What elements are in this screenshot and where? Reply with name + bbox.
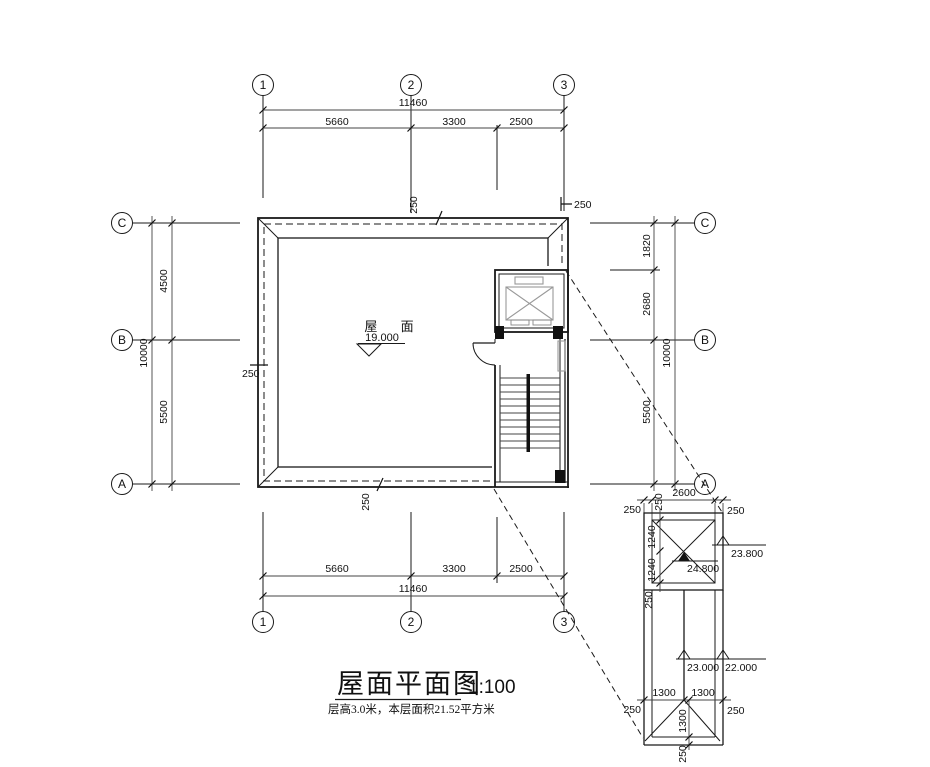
door-swing-arc [473,343,495,365]
drawing-note: 层高3.0米，本层面积21.52平方米 [328,702,495,716]
penthouse-roof-detail: 2600 250 250 250 1240 1240 250 24.800 23… [623,487,766,763]
grid-label-C-right: C [701,216,710,230]
detail-dim-top-right: 250 [727,505,745,517]
detail-dim-side-seg1: 1240 [646,525,658,549]
dim-left: C B A 10000 4500 5500 250 [112,213,269,495]
title-block: 屋面平面图 1:100 层高3.0米，本层面积21.52平方米 [328,669,516,716]
dim-bottom-overall: 11460 [399,583,428,595]
dim-bottom-seg1: 5660 [325,563,349,575]
detail-dim-bottom-seg1: 1300 [652,687,676,699]
grid-label-A-right: A [701,477,709,491]
dim-top-seg3: 2500 [509,116,533,128]
grid-label-C-left: C [118,216,127,230]
detail-dim-side-seg2: 1240 [646,558,658,582]
dim-bottom-seg3: 2500 [509,563,533,575]
grid-bubbles-top: 1 2 3 [253,75,575,214]
dim-bottom: 5660 3300 2500 11460 250 1 2 3 [253,478,575,633]
level-value-apex: 24.800 [687,563,719,575]
detail-dim-bottom-seg2: 1300 [691,687,715,699]
dim-right: 1820 2680 5500 10000 C B A [590,213,716,495]
drawing-title: 屋面平面图 [337,669,482,699]
dim-ticks-left [149,220,176,488]
grid-stems-bottom [263,512,564,612]
level-value-eave-lower: 22.000 [725,662,757,674]
grid-label-3-bottom: 3 [561,615,568,629]
cad-drawing-svg: 1 2 3 11460 5660 3300 2500 250 250 5660 … [0,0,930,767]
drawing-scale: 1:100 [468,677,516,698]
dim-left-overall: 10000 [138,338,150,367]
detail-dim-bottom-right: 250 [727,705,745,717]
wall-pier-left [495,326,504,339]
grid-stems-top [263,96,564,214]
grid-label-3-top: 3 [561,78,568,92]
grid-label-A-left: A [118,477,126,491]
wall-pier-bottom-right [555,470,565,483]
dim-right-seg2: 2680 [641,292,653,316]
dim-bottom-parapet: 250 [360,493,372,511]
dim-top-seg2: 3300 [442,116,466,128]
detail-dim-top-left: 250 [623,504,641,516]
dim-left-seg1: 4500 [158,269,170,293]
roof-level-triangle [357,344,381,356]
dim-right-seg3: 5500 [641,400,653,424]
dim-top-parapet: 250 [408,196,420,214]
wall-pier-right [553,326,563,339]
penthouse-background [492,266,569,488]
grid-label-B-left: B [118,333,126,347]
grid-label-2-bottom: 2 [408,615,415,629]
detail-dim-bottom-left: 250 [623,704,641,716]
dim-top-seg1: 5660 [325,116,349,128]
grid-lines-right [590,223,695,484]
dim-top-overall: 11460 [399,97,428,109]
dim-left-parapet: 250 [242,368,260,380]
dim-left-seg2: 5500 [158,400,170,424]
grid-label-2-top: 2 [408,78,415,92]
penthouse-block [473,266,569,488]
grid-label-1-top: 1 [260,78,267,92]
detail-dim-overall: 2600 [672,487,696,499]
dim-top-edge: 250 [574,199,592,211]
dim-bottom-seg2: 3300 [442,563,466,575]
detail-dim-ridge: 1300 [677,709,689,733]
grid-label-1-bottom: 1 [260,615,267,629]
roof-level-annotation: 屋 面 19.000 [357,319,424,356]
dim-right-overall: 10000 [661,338,673,367]
stair-handrail [527,374,531,452]
dim-top: 11460 5660 3300 2500 250 250 [260,97,592,225]
dim-top-edge-tick [561,197,572,211]
level-markers-lower [678,650,729,659]
leader-line-lower [494,489,643,738]
level-value-eave-upper: 23.800 [731,548,763,560]
dim-lines-left [152,216,172,491]
detail-dim-top-lines [637,500,731,520]
roof-level-value: 19.000 [365,332,399,344]
detail-dim-top-parapet: 250 [653,493,665,511]
roof-plan-drawing: 1 2 3 11460 5660 3300 2500 250 250 5660 … [0,0,930,767]
level-value-ridge: 23.000 [687,662,719,674]
dim-right-seg1: 1820 [641,234,653,258]
grid-label-B-right: B [701,333,709,347]
dim-bottom-parapet-tick [377,478,383,491]
detail-dim-side-parapet: 250 [643,591,655,609]
detail-dim-bottom-parapet: 250 [677,745,689,763]
